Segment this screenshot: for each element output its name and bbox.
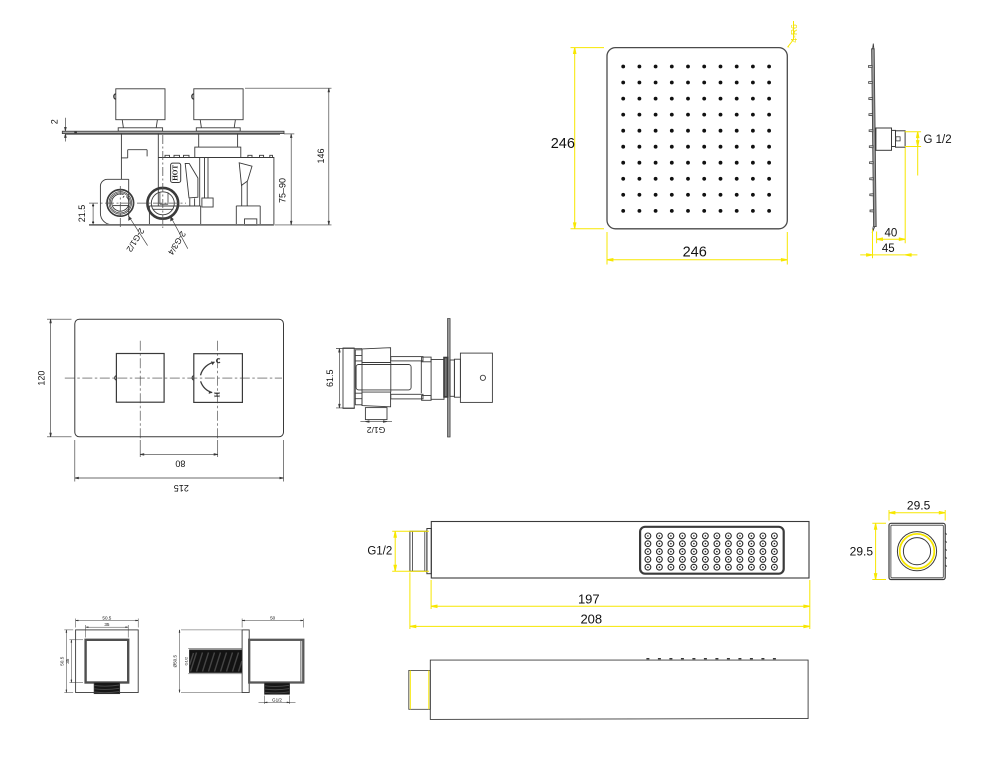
svg-text:29.5: 29.5: [907, 499, 931, 513]
svg-text:246: 246: [683, 245, 707, 261]
svg-text:246: 246: [551, 136, 575, 152]
svg-text:2: 2: [49, 119, 59, 124]
svg-text:215: 215: [174, 483, 189, 493]
svg-text:G 1/2: G 1/2: [924, 134, 952, 146]
svg-text:Ø50.5: Ø50.5: [173, 654, 178, 667]
svg-text:29.5: 29.5: [850, 545, 874, 559]
svg-text:75–90: 75–90: [277, 178, 287, 203]
svg-text:G1/2: G1/2: [367, 425, 386, 435]
svg-text:146: 146: [316, 148, 326, 163]
svg-text:197: 197: [578, 592, 600, 607]
svg-text:HOT: HOT: [172, 165, 180, 181]
svg-text:40: 40: [885, 227, 898, 239]
svg-text:G1/2: G1/2: [272, 698, 282, 703]
svg-text:35: 35: [65, 658, 70, 664]
svg-text:120: 120: [37, 371, 47, 386]
svg-text:208: 208: [580, 612, 602, 627]
svg-text:61.5: 61.5: [325, 369, 335, 387]
svg-text:50.5: 50.5: [102, 615, 111, 620]
svg-text:50: 50: [270, 615, 276, 620]
svg-text:50.5: 50.5: [59, 656, 64, 665]
svg-text:G1/2: G1/2: [184, 656, 189, 665]
svg-text:35: 35: [104, 622, 110, 627]
svg-text:G1/2: G1/2: [367, 546, 392, 558]
svg-text:4-R6: 4-R6: [789, 24, 799, 43]
svg-text:H: H: [214, 391, 222, 397]
svg-text:80: 80: [175, 459, 185, 469]
svg-text:45: 45: [882, 243, 895, 255]
svg-text:21.5: 21.5: [77, 205, 87, 223]
